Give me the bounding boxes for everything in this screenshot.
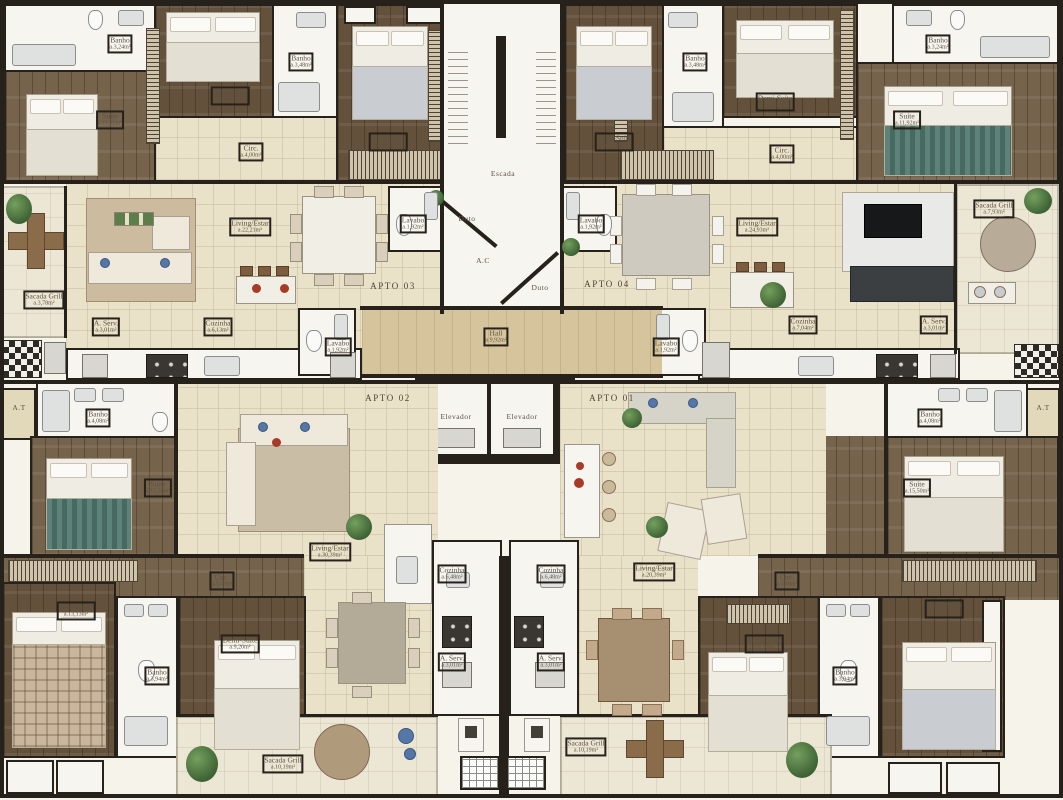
decor (272, 438, 281, 447)
vanity (124, 604, 144, 617)
kitchen-island-br (564, 444, 600, 538)
wardrobe-hatch (620, 150, 714, 180)
dining-table (598, 618, 670, 702)
stool (602, 452, 616, 466)
plant (622, 408, 642, 428)
sofa (88, 252, 192, 284)
toilet (88, 10, 103, 30)
fridge (330, 352, 356, 378)
stool (754, 262, 767, 272)
plant (562, 238, 580, 256)
chair (326, 618, 338, 638)
at-niche (406, 6, 444, 24)
chair (612, 704, 632, 716)
bathtub (994, 390, 1022, 432)
vanity (966, 388, 988, 402)
wood-table (646, 720, 664, 778)
vanity (906, 10, 932, 26)
oven (442, 662, 472, 688)
at-niche (344, 6, 376, 24)
stair-rail (496, 36, 506, 138)
plant (186, 746, 218, 782)
vanity (296, 12, 326, 28)
laundry-floor (2, 340, 42, 378)
stool (276, 266, 289, 276)
kitchen-sink (204, 356, 240, 376)
decor (574, 478, 584, 488)
bed (884, 86, 1012, 176)
decor (398, 728, 414, 744)
chair (376, 242, 388, 262)
stove (514, 616, 544, 648)
chair (290, 242, 302, 262)
balcony-rail (560, 714, 832, 717)
utility-box (6, 760, 54, 794)
floor-plan: Banhoa.3,24m²Suítea.11,92m²Demi-Suítea.8… (0, 0, 1063, 800)
washer (930, 354, 956, 378)
vanity (566, 192, 580, 220)
laundry-floor (1014, 344, 1059, 378)
chair (636, 278, 656, 290)
utility-box (56, 760, 104, 794)
stool (974, 286, 986, 298)
wood-table (27, 213, 45, 269)
sofa (706, 418, 736, 488)
chair (712, 244, 724, 264)
bed (26, 94, 98, 176)
tv (864, 204, 922, 238)
bed (166, 12, 260, 82)
chair (672, 278, 692, 290)
oven (535, 662, 565, 688)
fridge (702, 342, 730, 378)
sofa (240, 414, 348, 446)
plant (6, 194, 32, 224)
kitchen-sink (798, 356, 834, 376)
vanity (118, 10, 144, 26)
elevator-car (503, 428, 541, 448)
round-table (980, 216, 1036, 272)
cushion (300, 422, 310, 432)
wall (560, 0, 564, 314)
toilet (682, 330, 698, 352)
wall (560, 180, 1059, 184)
cushion (160, 258, 170, 268)
toilet (138, 660, 155, 682)
washer (82, 354, 108, 378)
plant (786, 742, 818, 778)
chair (326, 648, 338, 668)
vanity (668, 12, 698, 28)
shower (826, 716, 870, 746)
washer-door (531, 726, 543, 738)
wall (2, 554, 304, 558)
toilet (840, 660, 857, 682)
wall (2, 794, 1061, 798)
shower (124, 716, 168, 746)
armchair (152, 216, 190, 250)
wardrobe-hatch (348, 150, 442, 180)
chair (376, 214, 388, 234)
stove (876, 354, 918, 378)
room-at-l (2, 388, 36, 440)
stair-treads (536, 48, 556, 144)
toilet (950, 10, 965, 30)
kitchen-sink (540, 572, 564, 588)
vanity (938, 388, 960, 402)
toilet (596, 214, 612, 236)
bathtub (42, 390, 70, 432)
room-hall (362, 310, 662, 374)
dining-table (338, 602, 406, 684)
chair (672, 640, 684, 660)
stove (146, 354, 188, 378)
utility-box (888, 762, 942, 794)
wall (360, 374, 663, 378)
wall (954, 184, 957, 354)
wall-art (114, 212, 154, 226)
stove (442, 616, 472, 648)
chair (642, 704, 662, 716)
wardrobe-hatch (8, 560, 138, 582)
vanity (826, 604, 846, 617)
vanity (334, 314, 348, 340)
shower (278, 82, 320, 112)
wardrobe-hatch (902, 560, 1037, 582)
wall (2, 380, 1061, 384)
cushion (258, 422, 268, 432)
wardrobe-hatch (840, 10, 854, 140)
chair (672, 184, 692, 196)
vanity (148, 604, 168, 617)
room-circ-tl (154, 116, 338, 182)
decor (280, 284, 289, 293)
plant (646, 516, 668, 538)
chair (408, 618, 420, 638)
plant (1024, 188, 1052, 214)
wall (64, 186, 67, 338)
vanity (102, 388, 124, 402)
chair (712, 216, 724, 236)
stair-treads (448, 48, 468, 144)
elevator-car (437, 428, 475, 448)
bed (214, 640, 300, 750)
chair (344, 274, 364, 286)
washer-door (465, 726, 477, 738)
bed (708, 652, 788, 752)
chair (344, 186, 364, 198)
wall (1059, 0, 1063, 798)
dining-table (302, 196, 376, 274)
vanity (656, 314, 670, 340)
chair (408, 648, 420, 668)
chair (610, 244, 622, 264)
decor (404, 748, 416, 760)
washer (44, 342, 66, 374)
bed (12, 612, 106, 748)
vanity (424, 192, 438, 220)
stool (736, 262, 749, 272)
decor (576, 462, 584, 470)
stool (602, 508, 616, 522)
chair (642, 608, 662, 620)
bed (904, 456, 1004, 552)
sofa (850, 266, 954, 302)
island-sink (396, 556, 418, 584)
cushion (100, 258, 110, 268)
wall (440, 0, 444, 314)
chair (586, 640, 598, 660)
chair (314, 274, 334, 286)
bathtub (980, 36, 1050, 58)
chair (636, 184, 656, 196)
dining-table (622, 194, 710, 276)
wall (758, 554, 1059, 558)
bed (46, 458, 132, 550)
kitchen-sink (446, 572, 470, 588)
chair (352, 592, 372, 604)
drying-rack (460, 756, 500, 790)
stool (240, 266, 253, 276)
chair (290, 214, 302, 234)
cushion (688, 398, 698, 408)
room-at-r (1026, 388, 1060, 440)
toilet (396, 214, 412, 236)
plant (760, 282, 786, 308)
plant (346, 514, 372, 540)
wardrobe-hatch (146, 28, 160, 144)
wall (174, 382, 178, 556)
armchair (701, 493, 748, 545)
drying-rack (506, 756, 546, 790)
chair (314, 186, 334, 198)
round-table (314, 724, 370, 780)
vanity (850, 604, 870, 617)
bed (736, 20, 834, 98)
utility-box (946, 762, 1000, 794)
bed (352, 26, 428, 120)
shower (672, 92, 714, 122)
wardrobe-hatch (726, 604, 790, 624)
stool (258, 266, 271, 276)
toilet (306, 330, 322, 352)
bed (576, 26, 652, 120)
bed (902, 642, 996, 750)
stool (994, 286, 1006, 298)
wall (0, 0, 4, 798)
toilet (152, 412, 168, 432)
wall (2, 0, 1061, 4)
sofa (226, 442, 256, 526)
chair (612, 608, 632, 620)
wall (360, 306, 663, 310)
bathtub (12, 44, 76, 66)
wall (2, 180, 443, 184)
cushion (648, 398, 658, 408)
chair (352, 686, 372, 698)
stool (602, 480, 616, 494)
decor (252, 284, 261, 293)
stool (772, 262, 785, 272)
wall (884, 382, 888, 556)
vanity (74, 388, 96, 402)
